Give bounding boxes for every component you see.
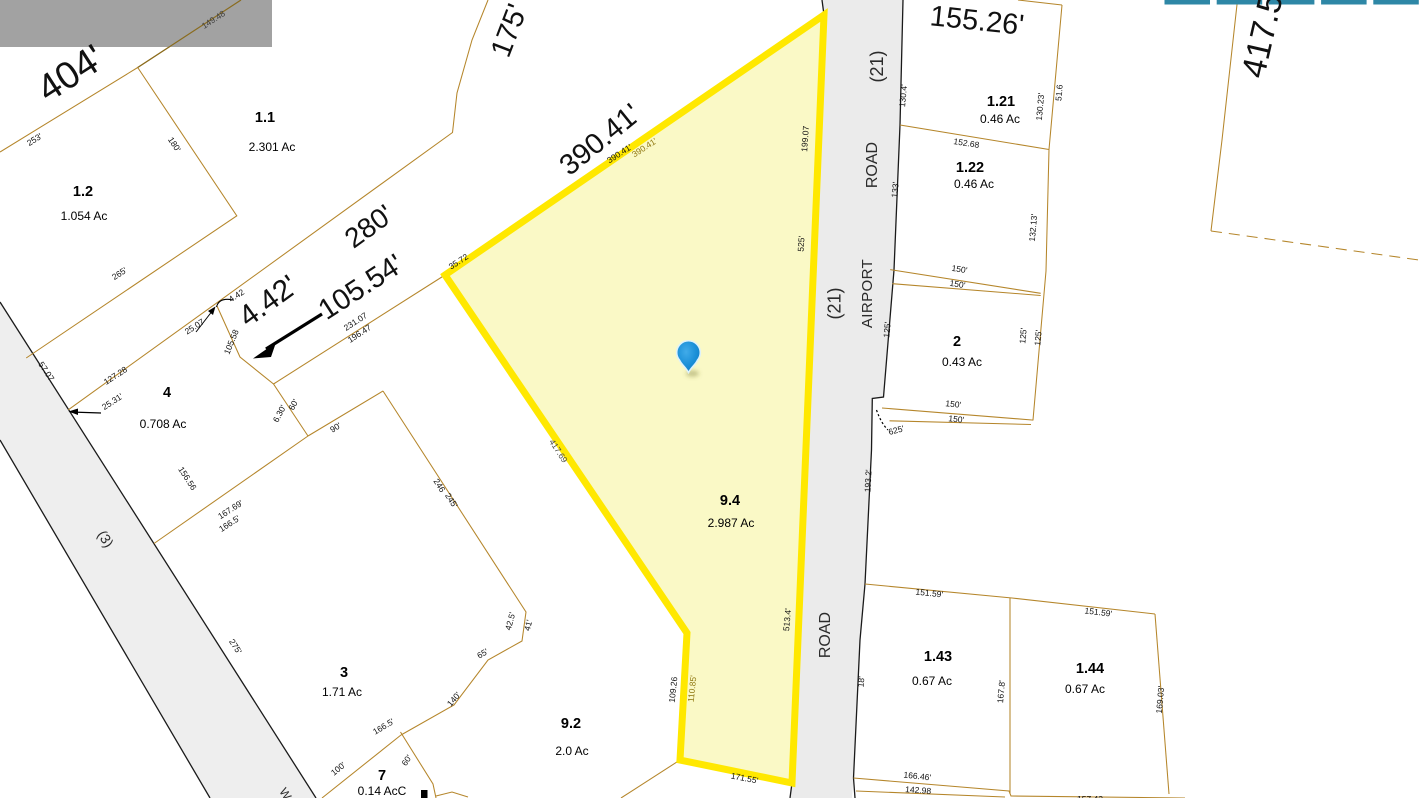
- svg-text:9.4: 9.4: [720, 493, 740, 509]
- svg-text:18': 18': [856, 675, 867, 687]
- svg-text:157.42: 157.42: [1077, 794, 1103, 798]
- svg-text:1.1: 1.1: [255, 110, 275, 126]
- svg-text:4: 4: [163, 385, 171, 401]
- svg-text:ROAD: ROAD: [864, 142, 881, 188]
- svg-text:193.2': 193.2': [862, 469, 873, 493]
- svg-text:525': 525': [795, 235, 806, 252]
- svg-text:ROAD: ROAD: [817, 612, 834, 658]
- svg-text:1.2: 1.2: [73, 184, 93, 200]
- svg-text:1.43: 1.43: [924, 649, 952, 665]
- svg-text:0.43 Ac: 0.43 Ac: [942, 355, 982, 369]
- svg-text:1.71 Ac: 1.71 Ac: [322, 685, 362, 699]
- svg-text:125': 125': [1032, 329, 1043, 346]
- svg-text:0.14 AcC: 0.14 AcC: [358, 784, 407, 798]
- svg-text:130.4': 130.4': [897, 84, 909, 108]
- svg-text:(21): (21): [825, 287, 845, 319]
- svg-text:9.2: 9.2: [561, 716, 581, 732]
- svg-text:2.987 Ac: 2.987 Ac: [708, 516, 755, 530]
- svg-text:142.98: 142.98: [905, 784, 932, 796]
- svg-text:0.708 Ac: 0.708 Ac: [140, 417, 187, 431]
- svg-text:3: 3: [340, 665, 348, 681]
- svg-text:125': 125': [1017, 327, 1028, 344]
- svg-text:1.054 Ac: 1.054 Ac: [61, 209, 108, 223]
- svg-text:1.22: 1.22: [956, 160, 984, 176]
- svg-text:2: 2: [953, 334, 961, 350]
- svg-text:0.67 Ac: 0.67 Ac: [1065, 682, 1105, 696]
- svg-text:125': 125': [881, 321, 892, 338]
- svg-text:199.07: 199.07: [799, 125, 811, 152]
- svg-text:150': 150': [948, 413, 965, 425]
- svg-text:167.8': 167.8': [995, 680, 1007, 704]
- svg-text:133': 133': [889, 181, 900, 198]
- svg-text:AIRPORT: AIRPORT: [859, 259, 876, 328]
- svg-text:1.44: 1.44: [1076, 661, 1104, 677]
- svg-text:513.4': 513.4': [781, 608, 793, 632]
- svg-text:0.67 Ac: 0.67 Ac: [912, 674, 952, 688]
- svg-text:2.0 Ac: 2.0 Ac: [555, 744, 588, 758]
- svg-text:7: 7: [378, 768, 386, 784]
- svg-text:51.6: 51.6: [1053, 84, 1064, 102]
- svg-text:2.301 Ac: 2.301 Ac: [249, 140, 296, 154]
- svg-text:1.21: 1.21: [987, 94, 1015, 110]
- svg-text:150': 150': [945, 398, 962, 410]
- svg-text:0.46 Ac: 0.46 Ac: [954, 177, 994, 191]
- svg-text:0.46 Ac: 0.46 Ac: [980, 112, 1020, 126]
- svg-text:(21): (21): [867, 50, 887, 82]
